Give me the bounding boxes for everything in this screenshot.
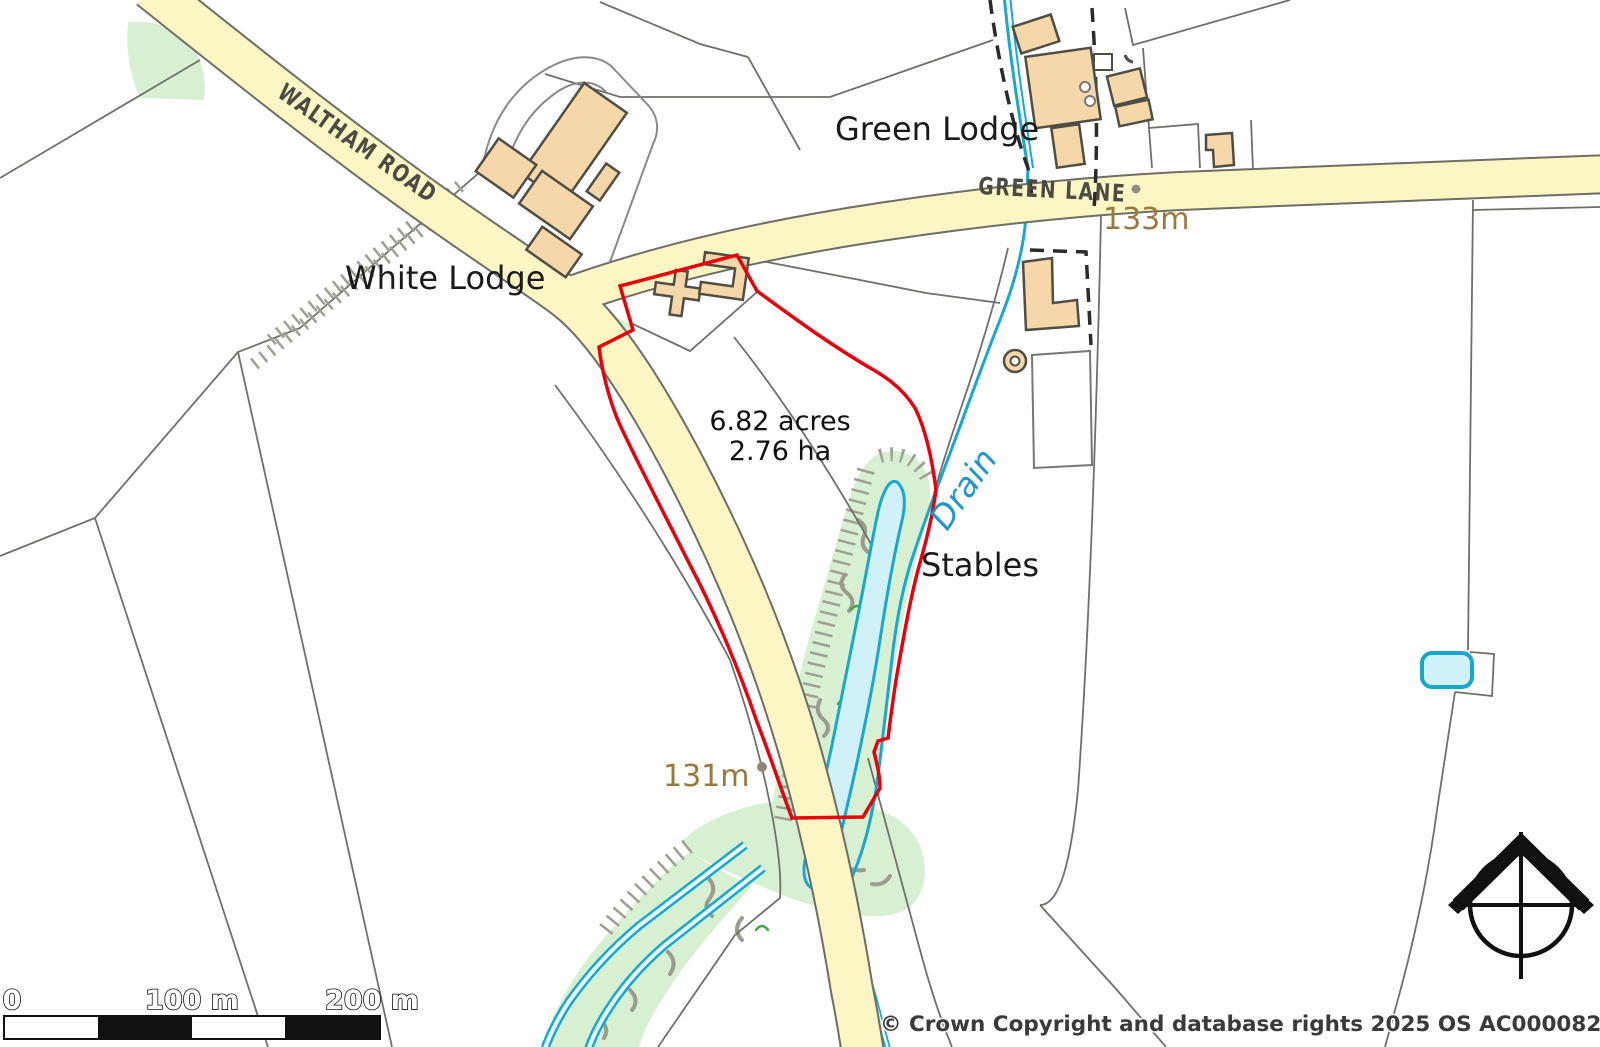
tank — [1085, 96, 1095, 106]
spot-height-dot-131 — [757, 762, 767, 772]
building-outline — [1094, 54, 1112, 70]
pond-small — [1422, 653, 1472, 687]
label-stables: Stables — [921, 546, 1039, 584]
spot-height-dot-133 — [1132, 185, 1141, 194]
parcel-area-hectares: 2.76 ha — [729, 436, 831, 467]
parcel-area-acres: 6.82 acres — [709, 406, 850, 437]
building — [1051, 124, 1084, 168]
label-white-lodge: White Lodge — [345, 259, 545, 297]
spot-height-131: 131m — [663, 759, 749, 794]
scale-label-100: 100 m — [145, 985, 239, 1016]
silo-center — [1011, 357, 1020, 366]
scale-label-0: 0 — [3, 985, 22, 1016]
building-outline — [1032, 351, 1092, 468]
label-green-lodge: Green Lodge — [835, 110, 1039, 148]
spot-height-133: 133m — [1103, 202, 1189, 237]
tank — [1080, 82, 1090, 92]
map-canvas[interactable]: WALTHAM ROAD GREEN LANE White Lodge Gree… — [0, 0, 1600, 1047]
copyright-text: © Crown Copyright and database rights 20… — [880, 1012, 1600, 1037]
scale-label-200: 200 m — [325, 985, 419, 1016]
